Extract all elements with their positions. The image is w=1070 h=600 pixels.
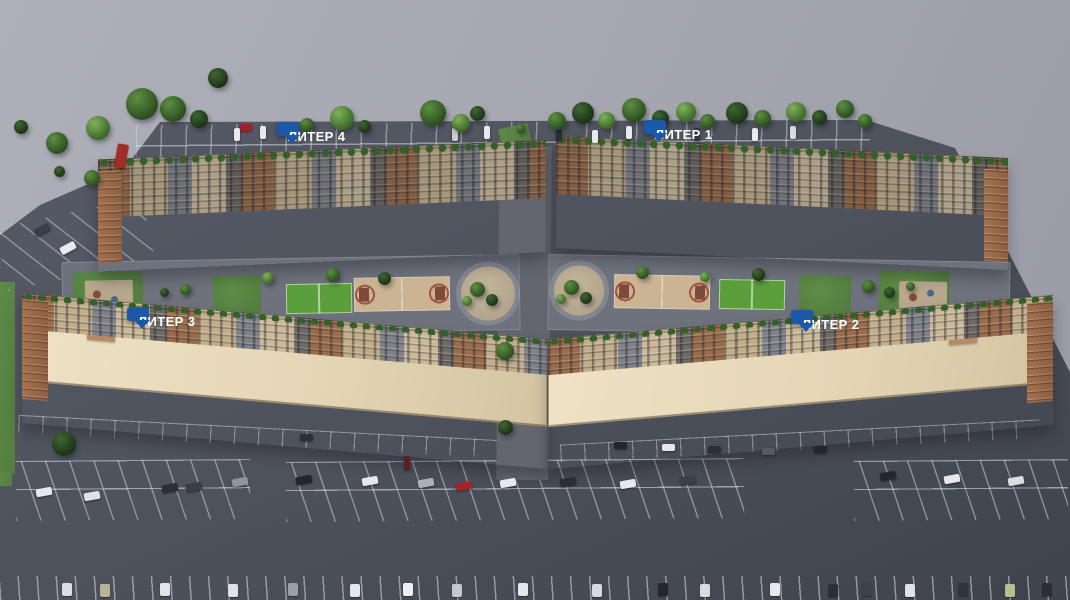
car [614, 442, 627, 449]
car [828, 584, 838, 597]
site-plan-render: ЛИТЕР 4 ЛИТЕР 1 ЛИТЕР 3 ЛИТЕР 2 [0, 0, 1070, 600]
tree [420, 100, 446, 126]
car [240, 124, 252, 131]
tree [452, 114, 470, 132]
tree [516, 124, 525, 133]
tree [572, 102, 594, 124]
grass-strip-left [0, 282, 15, 474]
tree [14, 120, 28, 134]
car [592, 584, 602, 597]
basketball-court-left [354, 276, 451, 312]
building-liter-4[interactable] [98, 140, 546, 272]
tree [812, 110, 827, 125]
car [905, 584, 915, 597]
building-endcap [22, 299, 48, 401]
car [518, 583, 528, 596]
tree [752, 268, 765, 281]
car [662, 444, 675, 451]
building-tag-liter-2[interactable]: ЛИТЕР 2 [791, 310, 813, 324]
tree [754, 110, 771, 127]
building-endcap [1027, 301, 1053, 403]
tree [884, 287, 895, 298]
playground-equipment [909, 293, 917, 301]
tree [700, 272, 710, 282]
building-tag-liter-1[interactable]: ЛИТЕР 1 [644, 120, 666, 134]
car [752, 128, 758, 141]
building-liter-1[interactable] [556, 136, 1008, 270]
tree [862, 280, 875, 293]
car [762, 448, 775, 455]
grass-corner [0, 472, 12, 486]
tree [262, 272, 274, 284]
tree [470, 106, 485, 121]
building-endcap [98, 171, 122, 264]
tree [548, 112, 566, 130]
car [1005, 584, 1015, 597]
car [592, 130, 598, 143]
car [790, 126, 796, 139]
tree [498, 420, 513, 435]
building-tag-liter-3[interactable]: ЛИТЕР 3 [127, 307, 149, 321]
playground-equipment [927, 290, 934, 297]
tree [786, 102, 806, 122]
car [62, 583, 72, 596]
playground-circle-right [551, 262, 608, 319]
car [484, 126, 490, 139]
tree [54, 166, 65, 177]
tree [858, 114, 872, 128]
tree [676, 102, 696, 122]
tree [86, 116, 110, 140]
car [288, 583, 298, 596]
car [862, 583, 872, 596]
car [404, 456, 410, 470]
car [770, 583, 780, 596]
car [958, 583, 968, 596]
car [300, 434, 313, 441]
tree [598, 112, 615, 129]
building-tag-label: ЛИТЕР 3 [138, 314, 195, 329]
car [403, 583, 413, 596]
tree [496, 342, 514, 360]
tree [326, 268, 340, 282]
tree [208, 68, 228, 88]
building-tag-label: ЛИТЕР 1 [655, 127, 712, 142]
tree [556, 294, 566, 304]
tree [726, 102, 748, 124]
tree [636, 266, 649, 279]
tree [622, 98, 646, 122]
tree [52, 432, 76, 456]
car [100, 584, 110, 597]
tree [180, 284, 191, 295]
tree [580, 292, 592, 304]
tree [462, 296, 472, 306]
tree [190, 110, 208, 128]
car [234, 128, 240, 141]
car [1042, 583, 1052, 596]
tree [126, 88, 158, 120]
car [228, 584, 238, 597]
tree [46, 132, 68, 154]
tree [470, 282, 485, 297]
playground-equipment [93, 290, 101, 298]
car [700, 584, 710, 597]
basketball-court-right [614, 274, 711, 310]
tree [906, 282, 915, 291]
tree [836, 100, 854, 118]
parking-block-bottom-3 [854, 459, 1069, 521]
tree [486, 294, 498, 306]
tree [330, 106, 354, 130]
car [626, 126, 632, 139]
playground-circle-left [457, 263, 518, 324]
car [260, 126, 266, 139]
building-endcap [984, 169, 1008, 262]
car [160, 583, 170, 596]
car [452, 584, 462, 597]
tree [564, 280, 579, 295]
tree [378, 272, 391, 285]
building-tag-label: ЛИТЕР 4 [288, 129, 345, 144]
tennis-court-left [286, 283, 353, 314]
tree [358, 120, 371, 133]
car [814, 446, 827, 453]
tree [84, 170, 100, 186]
building-tag-label: ЛИТЕР 2 [802, 317, 859, 332]
tennis-court-right [719, 279, 786, 310]
tree [160, 96, 186, 122]
car [658, 583, 668, 596]
car [350, 584, 360, 597]
tree [160, 288, 169, 297]
car [708, 446, 721, 453]
building-tag-liter-4[interactable]: ЛИТЕР 4 [277, 122, 299, 136]
